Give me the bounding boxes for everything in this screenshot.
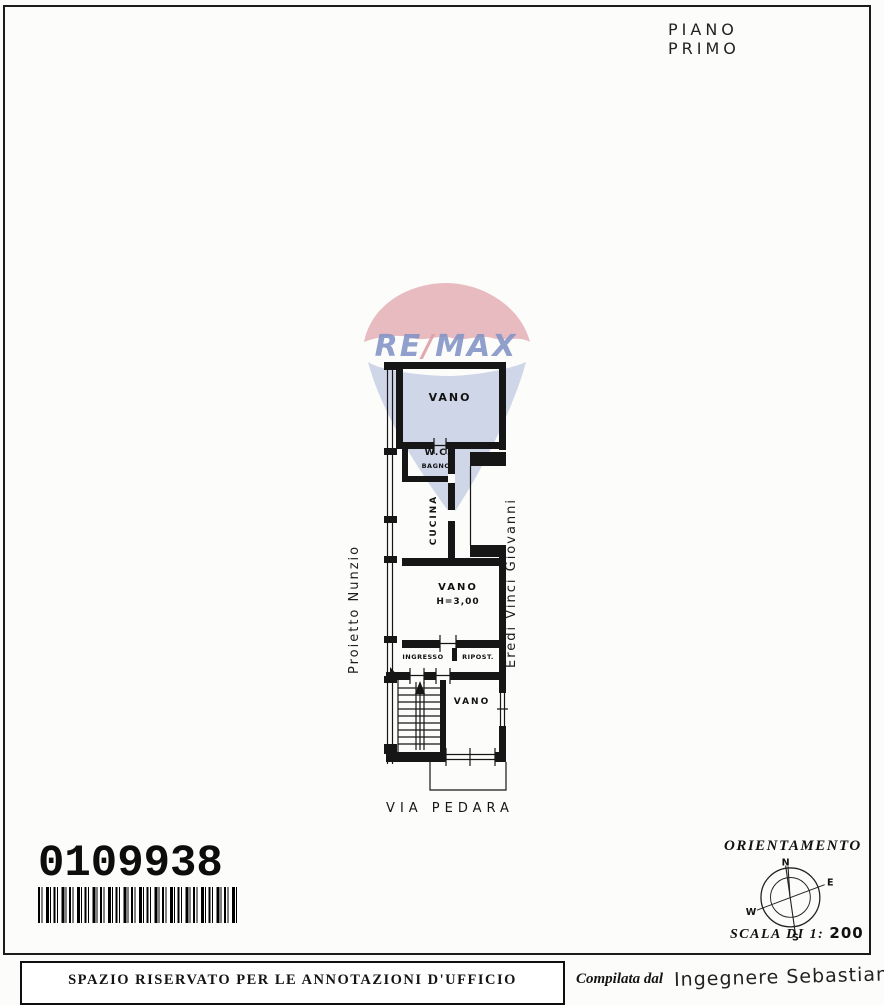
- compiled-by-name: Ingegnere Sebastiano: [674, 963, 884, 991]
- barcode-icon: [38, 887, 239, 923]
- office-annotations-label: SPAZIO RISERVATO PER LE ANNOTAZIONI D'UF…: [22, 972, 563, 989]
- barcode-number: 0109938: [38, 842, 258, 887]
- floor-title: PIANO PRIMO: [668, 20, 828, 58]
- room-label-ingresso: INGRESSO: [393, 653, 453, 661]
- compiled-by-label: Compilata dal: [576, 971, 663, 987]
- scale-label: SCALA DI 1:: [730, 927, 824, 942]
- room-label-ripostiglio: RIPOST.: [450, 653, 506, 661]
- compass-east-label: E: [827, 877, 834, 888]
- floor-plan: RE/MAX: [340, 278, 550, 838]
- office-annotations-box: SPAZIO RISERVATO PER LE ANNOTAZIONI D'UF…: [20, 961, 565, 1005]
- compass-west-label: W: [746, 907, 757, 918]
- room-label-wc: W.C.: [418, 448, 458, 458]
- orientation-title: ORIENTAMENTO: [724, 838, 864, 855]
- compass-north-label: N: [782, 858, 790, 869]
- room-label-bagno: BAGNO: [414, 462, 458, 470]
- room-label-vano-bottom: VANO: [441, 697, 503, 707]
- scale-value: 200: [829, 924, 863, 942]
- scale-note: SCALA DI 1: 200: [730, 923, 880, 943]
- room-label-vano-top: VANO: [410, 391, 490, 404]
- room-label-cucina: CUCINA: [429, 490, 441, 550]
- floor-plan-drawing: [340, 278, 550, 838]
- compiled-by: Compilata dal Ingegnere Sebastiano: [576, 966, 884, 988]
- room-label-vano-mid: VANO: [418, 582, 498, 593]
- barcode-block: 0109938: [38, 842, 258, 923]
- room-label-height: H=3,00: [418, 597, 498, 607]
